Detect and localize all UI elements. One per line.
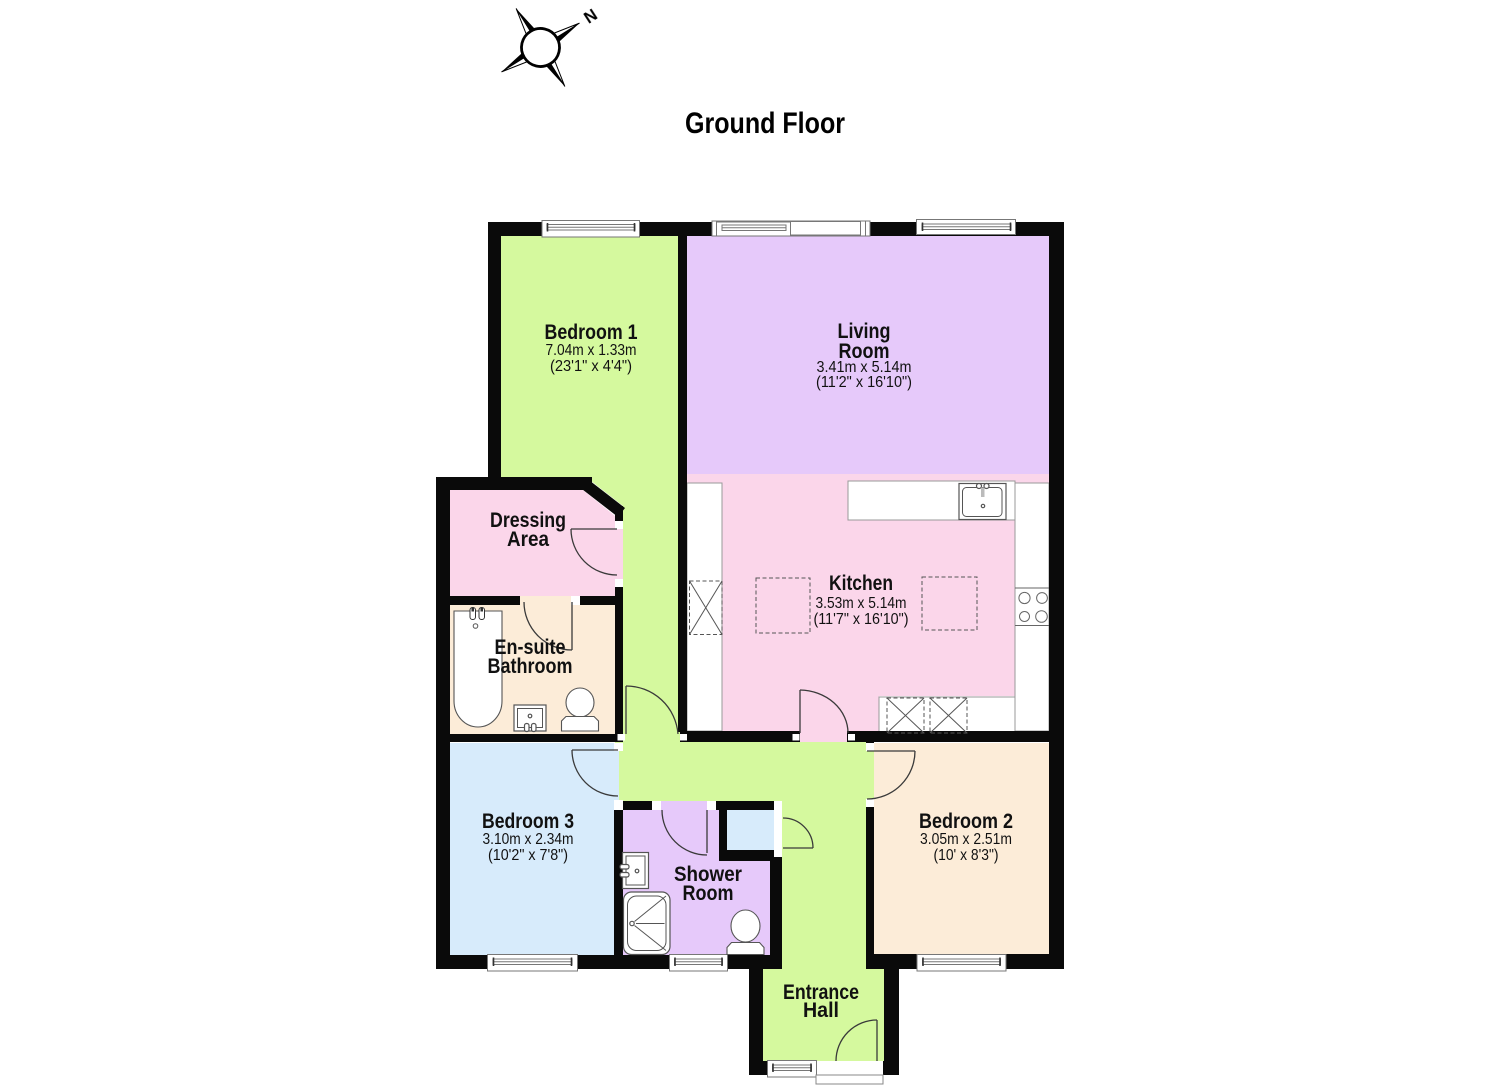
svg-text:(11'2" x 16'10"): (11'2" x 16'10") [816,374,912,391]
svg-text:Bathroom: Bathroom [488,655,573,678]
svg-text:Bedroom 2: Bedroom 2 [919,810,1013,833]
svg-text:3.05m x 2.51m: 3.05m x 2.51m [920,831,1012,848]
svg-text:(11'7" x 16'10"): (11'7" x 16'10") [814,611,909,628]
svg-text:Kitchen: Kitchen [829,572,893,595]
svg-text:Bedroom 3: Bedroom 3 [482,810,574,833]
svg-text:(23'1" x 4'4"): (23'1" x 4'4") [550,358,632,375]
svg-text:(10' x 8'3"): (10' x 8'3") [934,847,999,864]
svg-text:Room: Room [683,882,734,905]
svg-text:Hall: Hall [803,999,839,1022]
svg-text:Bedroom 1: Bedroom 1 [545,321,638,344]
svg-text:Area: Area [507,528,549,551]
svg-text:7.04m x 1.33m: 7.04m x 1.33m [546,342,637,359]
svg-text:3.10m x 2.34m: 3.10m x 2.34m [483,831,574,848]
svg-text:3.53m x 5.14m: 3.53m x 5.14m [816,595,907,612]
svg-text:Ground Floor: Ground Floor [685,107,845,140]
svg-text:(10'2" x 7'8"): (10'2" x 7'8") [488,847,568,864]
